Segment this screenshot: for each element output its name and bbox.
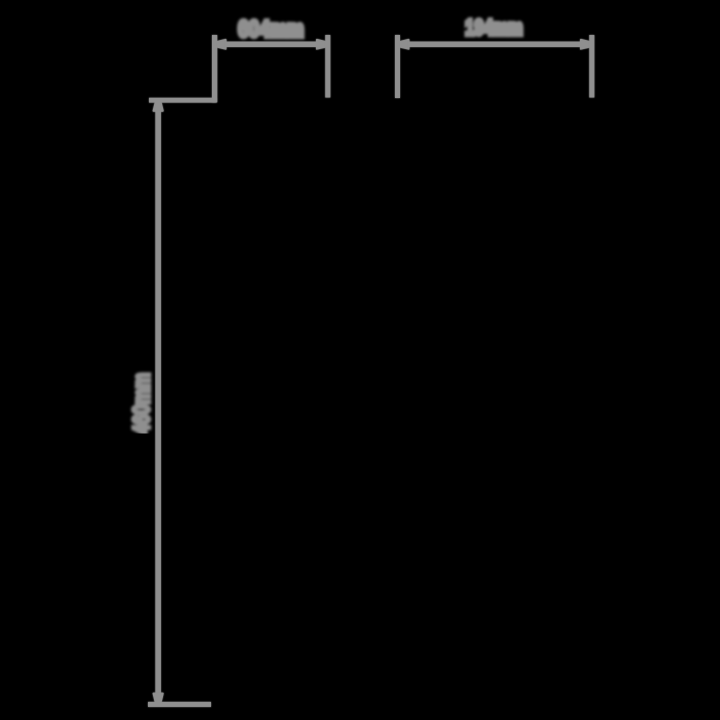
svg-text:460mm: 460mm [129, 373, 156, 435]
svg-text:194mm: 194mm [465, 15, 523, 40]
svg-text:604mm: 604mm [238, 16, 304, 43]
